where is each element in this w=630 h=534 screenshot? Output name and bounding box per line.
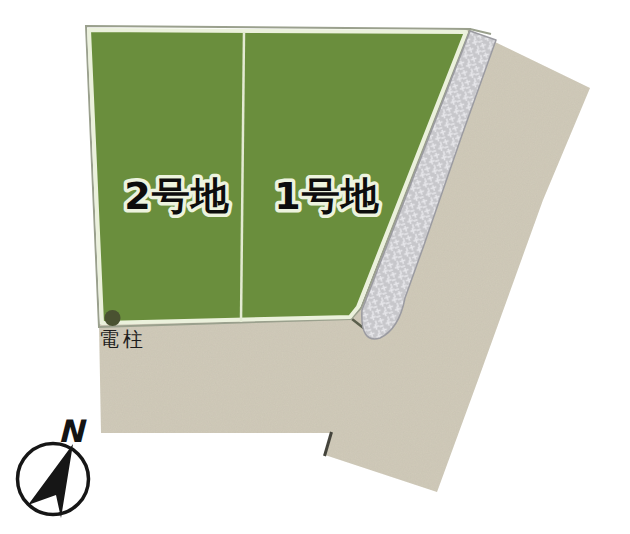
site-plan: 2号地 1号地 電柱 N (0, 0, 630, 534)
plot-2-label: 2号地 (124, 174, 229, 218)
compass: N (18, 413, 89, 518)
utility-pole-label: 電柱 (99, 327, 147, 351)
utility-pole-dot (105, 310, 121, 326)
compass-north-label: N (58, 413, 87, 449)
site-plan-canvas: 2号地 1号地 電柱 N (0, 0, 630, 534)
compass-needle (28, 444, 73, 518)
plot-1-label: 1号地 (274, 174, 379, 218)
